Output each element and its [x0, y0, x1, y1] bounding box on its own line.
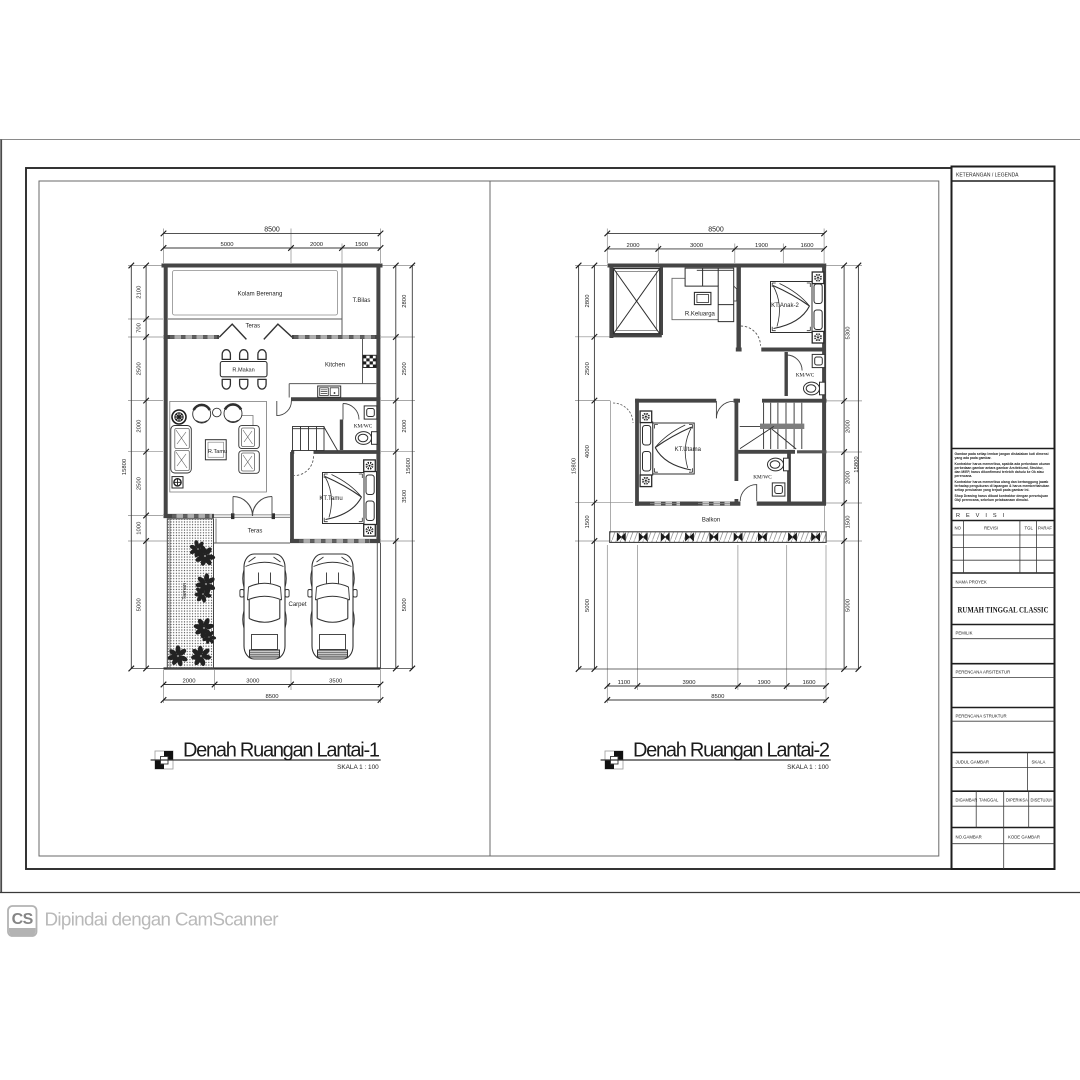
svg-text:PEMILIK: PEMILIK: [956, 631, 973, 636]
svg-text:2000: 2000: [402, 419, 408, 433]
svg-text:REVISI: REVISI: [984, 526, 998, 531]
svg-text:3000: 3000: [246, 679, 260, 685]
svg-text:Denah Ruangan Lantai-1: Denah Ruangan Lantai-1: [183, 740, 380, 762]
svg-text:CS: CS: [12, 911, 34, 928]
svg-text:1600: 1600: [802, 680, 816, 686]
svg-text:15600: 15600: [406, 457, 412, 474]
svg-text:1900: 1900: [755, 243, 769, 249]
svg-text:2000: 2000: [137, 419, 143, 433]
svg-text:Taman: Taman: [182, 583, 188, 600]
svg-text:2000: 2000: [626, 243, 640, 249]
svg-text:KETERANGAN / LEGENDA: KETERANGAN / LEGENDA: [956, 173, 1019, 179]
svg-text:3900: 3900: [682, 680, 696, 686]
svg-text:R E V I S I: R E V I S I: [956, 513, 1006, 519]
svg-text:5000: 5000: [585, 598, 591, 612]
svg-text:1500: 1500: [355, 242, 369, 248]
svg-text:4000: 4000: [585, 444, 591, 458]
svg-text:3500: 3500: [329, 679, 343, 685]
svg-text:DIPERIKSA: DIPERIKSA: [1006, 798, 1028, 803]
svg-text:1100: 1100: [618, 680, 631, 686]
svg-text:Carpet: Carpet: [288, 602, 306, 608]
svg-text:1000: 1000: [137, 521, 143, 535]
svg-text:2500: 2500: [137, 362, 143, 376]
svg-text:yang ada pada gambar.: yang ada pada gambar.: [955, 456, 992, 460]
svg-text:Obj/ perencana, sebelum pelaks: Obj/ perencana, sebelum pelaksanaan dimu…: [955, 498, 1029, 502]
svg-text:2500: 2500: [585, 361, 591, 375]
svg-text:Teras: Teras: [248, 529, 263, 535]
svg-text:2000: 2000: [182, 679, 196, 685]
svg-text:8500: 8500: [708, 226, 724, 233]
svg-text:Dipindai dengan CamScanner: Dipindai dengan CamScanner: [45, 909, 279, 930]
svg-text:SKALA: SKALA: [1032, 760, 1046, 765]
svg-text:2800: 2800: [585, 294, 591, 308]
svg-text:R.Makan: R.Makan: [232, 368, 254, 374]
svg-text:2000: 2000: [310, 242, 324, 248]
svg-text:5300: 5300: [846, 326, 852, 340]
svg-text:NO: NO: [955, 526, 962, 531]
svg-text:R.Tamu: R.Tamu: [208, 449, 227, 455]
svg-text:KT.Anak-2: KT.Anak-2: [771, 303, 799, 309]
svg-text:2000: 2000: [846, 470, 852, 484]
svg-text:1600: 1600: [800, 243, 814, 249]
svg-text:Balkon: Balkon: [702, 518, 720, 524]
svg-text:PERENCANA STRUKTUR: PERENCANA STRUKTUR: [956, 713, 1007, 718]
svg-text:3500: 3500: [402, 489, 408, 503]
svg-text:5000: 5000: [220, 242, 234, 248]
svg-text:JUDUL GAMBAR: JUDUL GAMBAR: [956, 760, 990, 765]
svg-text:NO.GAMBAR: NO.GAMBAR: [956, 835, 982, 840]
svg-text:KM/WC: KM/WC: [796, 373, 815, 379]
svg-text:T.Bilas: T.Bilas: [353, 298, 371, 304]
svg-text:TANGGAL: TANGGAL: [979, 798, 999, 803]
svg-text:NAMA PROYEK: NAMA PROYEK: [956, 580, 987, 585]
svg-text:15800: 15800: [572, 457, 578, 474]
svg-text:Denah Ruangan Lantai-2: Denah Ruangan Lantai-2: [633, 740, 830, 762]
svg-text:Teras: Teras: [245, 324, 260, 330]
svg-text:KT.Utama: KT.Utama: [675, 447, 702, 453]
svg-text:KT.Tamu: KT.Tamu: [319, 496, 342, 502]
svg-text:perencana.: perencana.: [955, 474, 973, 478]
svg-text:Kitchen: Kitchen: [325, 363, 345, 369]
svg-text:15800: 15800: [122, 458, 128, 475]
svg-text:TGL: TGL: [1025, 526, 1034, 531]
svg-text:setiap perubahan yang terjadi: setiap perubahan yang terjadi pada gamba…: [955, 488, 1030, 492]
svg-text:KM/WC: KM/WC: [354, 424, 373, 430]
svg-text:DISETUJUI: DISETUJUI: [1031, 798, 1052, 803]
svg-text:KODE GAMBAR: KODE GAMBAR: [1008, 835, 1040, 840]
svg-text:8500: 8500: [265, 694, 279, 700]
svg-text:SKALA 1 : 100: SKALA 1 : 100: [787, 764, 829, 771]
svg-text:15800: 15800: [854, 456, 860, 473]
svg-text:700: 700: [137, 322, 143, 333]
svg-text:1500: 1500: [585, 515, 591, 529]
svg-text:DIGAMBAR: DIGAMBAR: [956, 798, 978, 803]
svg-text:Kolam Berenang: Kolam Berenang: [238, 292, 283, 298]
svg-text:2000: 2000: [846, 419, 852, 433]
svg-text:8500: 8500: [711, 694, 725, 700]
svg-text:5000: 5000: [402, 598, 408, 612]
svg-text:2500: 2500: [402, 362, 408, 376]
svg-text:KM/WC: KM/WC: [753, 474, 772, 480]
svg-text:1500: 1500: [846, 515, 852, 529]
svg-text:SKALA 1 : 100: SKALA 1 : 100: [337, 764, 379, 771]
svg-text:2500: 2500: [137, 476, 143, 490]
svg-text:2800: 2800: [402, 294, 408, 308]
svg-text:5000: 5000: [846, 598, 852, 612]
svg-text:1900: 1900: [757, 680, 771, 686]
svg-text:3000: 3000: [690, 243, 704, 249]
svg-text:PERENCANA ARSITEKTUR: PERENCANA ARSITEKTUR: [956, 670, 1011, 675]
svg-text:R.Keluarga: R.Keluarga: [685, 311, 716, 317]
svg-text:2100: 2100: [137, 285, 143, 299]
svg-text:RUMAH TINGGAL CLASSIC: RUMAH TINGGAL CLASSIC: [958, 605, 1049, 615]
svg-text:8500: 8500: [264, 226, 280, 233]
svg-text:PARAF: PARAF: [1038, 526, 1052, 531]
svg-text:5000: 5000: [137, 598, 143, 612]
